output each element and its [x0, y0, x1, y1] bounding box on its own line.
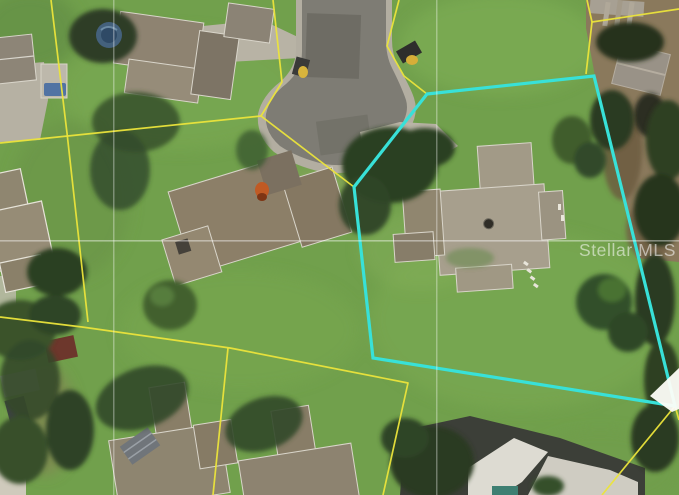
- aerial-map: Stellar MLS: [0, 0, 679, 495]
- satellite-image: Stellar MLS: [0, 0, 679, 495]
- house-top-left-corner: [0, 34, 36, 84]
- watermark-text: Stellar MLS: [579, 240, 676, 260]
- pool: [492, 486, 518, 495]
- garage-roof: [224, 3, 274, 43]
- pool-top-left: [96, 22, 122, 48]
- roof-vent: [483, 218, 494, 229]
